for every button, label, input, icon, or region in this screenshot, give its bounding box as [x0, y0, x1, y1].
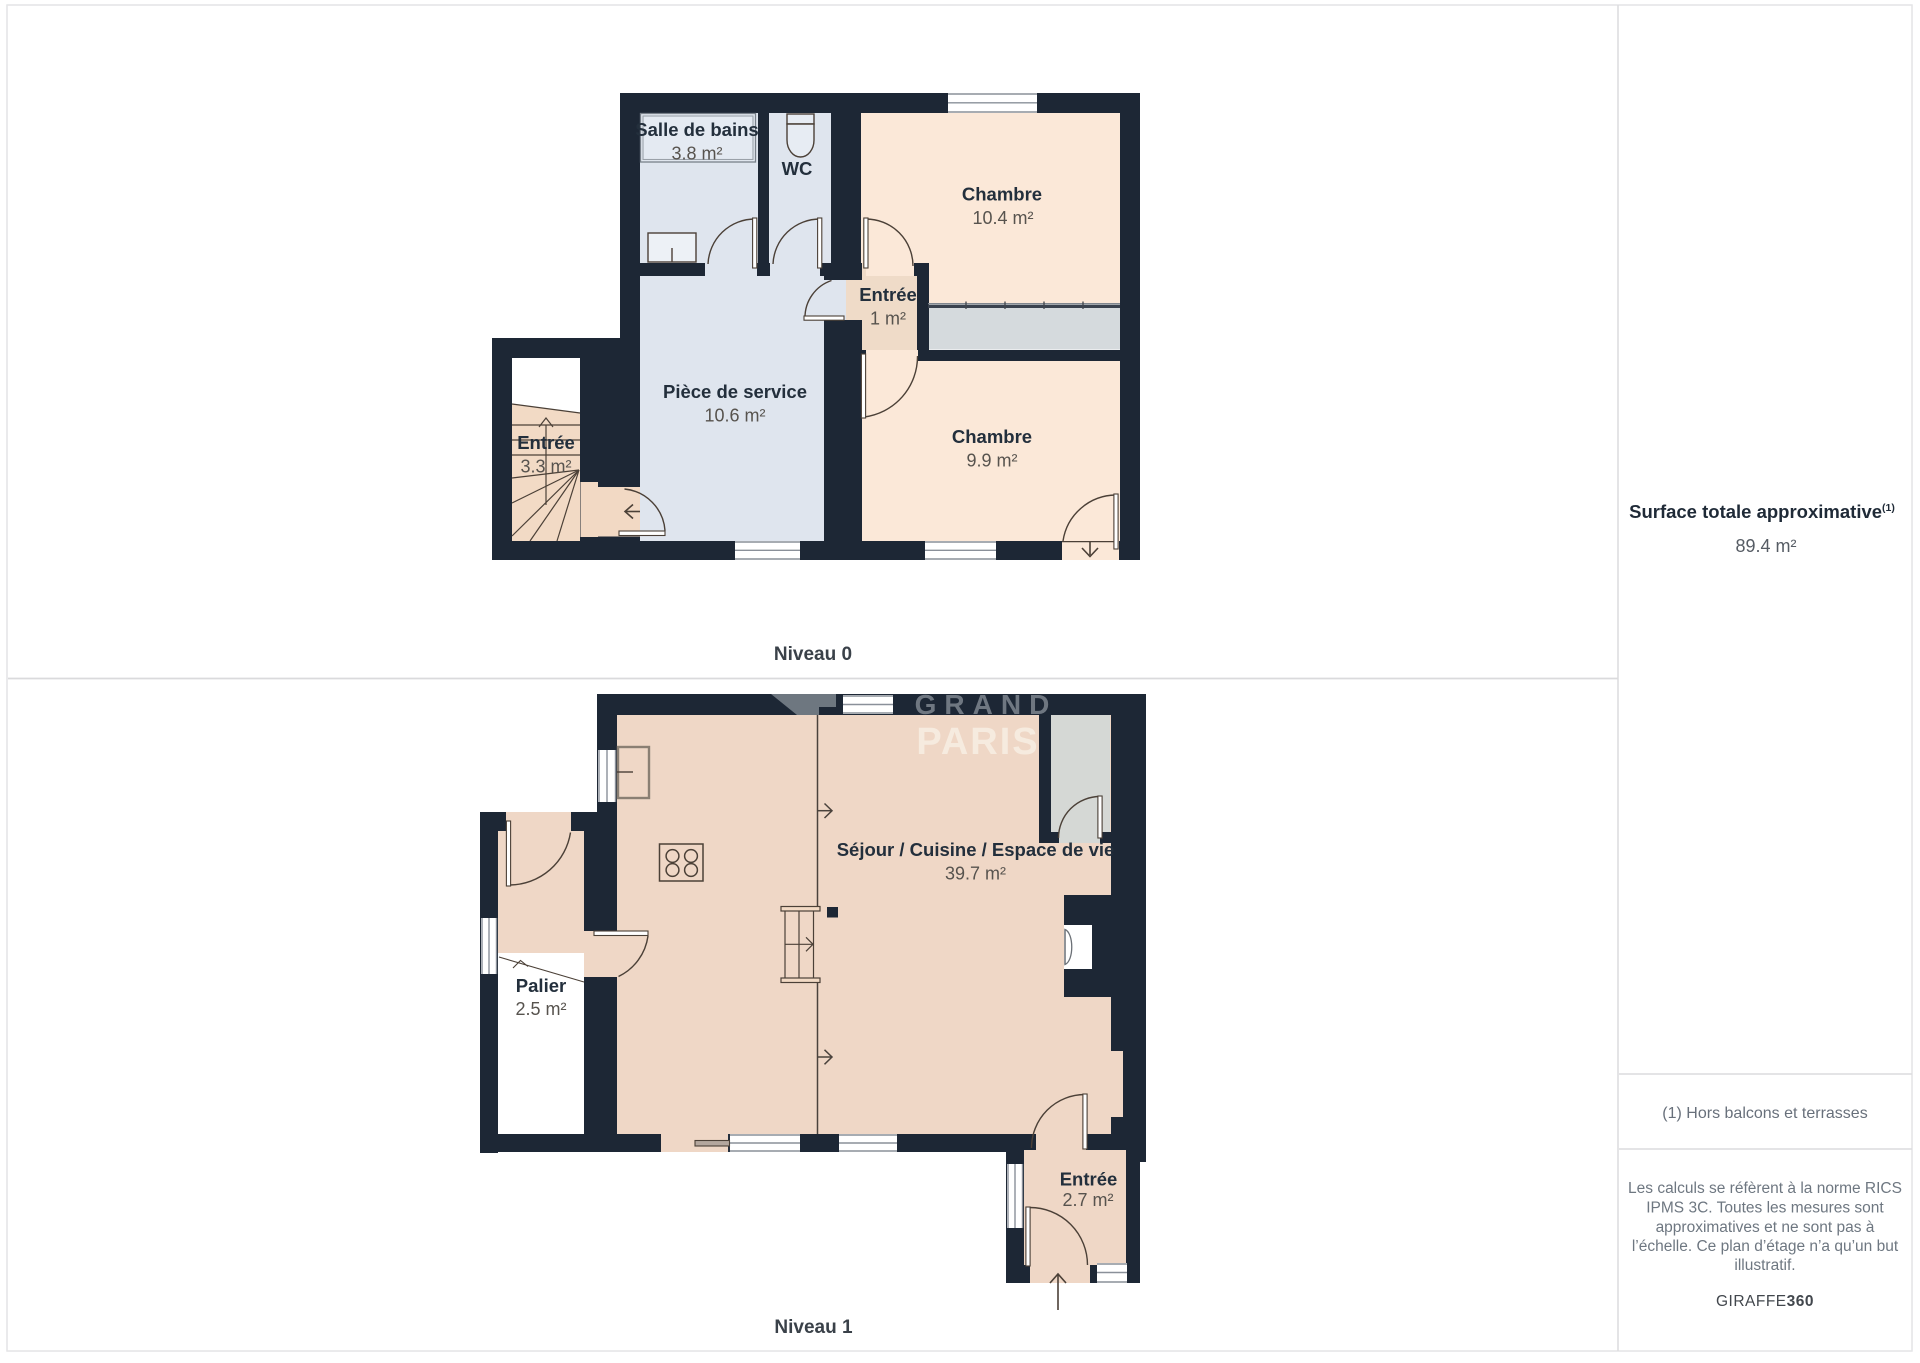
svg-text:2.5 m²: 2.5 m² — [515, 999, 566, 1019]
svg-text:approximatives et ne sont pas: approximatives et ne sont pas à — [1656, 1219, 1875, 1236]
svg-text:9.9 m²: 9.9 m² — [966, 451, 1017, 471]
svg-text:PARIS: PARIS — [916, 721, 1039, 763]
svg-text:3.8 m²: 3.8 m² — [671, 144, 722, 164]
svg-text:Pièce de service: Pièce de service — [663, 381, 807, 402]
svg-text:Entrée: Entrée — [1060, 1169, 1118, 1190]
svg-text:GIRAFFE360: GIRAFFE360 — [1716, 1293, 1814, 1310]
svg-text:Entrée: Entrée — [517, 432, 575, 453]
svg-text:Salle de bains: Salle de bains — [635, 119, 758, 140]
svg-text:89.4 m²: 89.4 m² — [1735, 536, 1796, 556]
svg-text:l’échelle. Ce plan d’étage n’a: l’échelle. Ce plan d’étage n’a qu’un but — [1632, 1238, 1899, 1255]
svg-text:WC: WC — [782, 158, 813, 179]
svg-text:Surface totale approximative(1: Surface totale approximative(1) — [1629, 501, 1895, 522]
svg-text:Entrée: Entrée — [859, 284, 917, 305]
svg-text:GRAND: GRAND — [915, 689, 1058, 720]
svg-text:Les calculs se réfèrent à la n: Les calculs se réfèrent à la norme RICS — [1628, 1180, 1902, 1197]
svg-text:2.7 m²: 2.7 m² — [1062, 1190, 1113, 1210]
svg-text:(1) Hors balcons et terrasses: (1) Hors balcons et terrasses — [1662, 1105, 1867, 1122]
svg-text:1 m²: 1 m² — [870, 309, 906, 329]
svg-text:IPMS 3C. Toutes les mesures so: IPMS 3C. Toutes les mesures sont — [1646, 1200, 1884, 1217]
svg-text:3.3 m²: 3.3 m² — [520, 457, 571, 477]
svg-text:10.4 m²: 10.4 m² — [972, 208, 1033, 228]
svg-text:Niveau 0: Niveau 0 — [774, 644, 852, 665]
svg-text:Palier: Palier — [516, 975, 566, 996]
svg-text:Niveau 1: Niveau 1 — [774, 1317, 853, 1338]
svg-text:39.7 m²: 39.7 m² — [945, 864, 1006, 884]
svg-text:Séjour / Cuisine / Espace de v: Séjour / Cuisine / Espace de vie — [837, 839, 1115, 860]
svg-text:Chambre: Chambre — [962, 184, 1042, 205]
svg-text:Chambre: Chambre — [952, 426, 1032, 447]
svg-text:illustratif.: illustratif. — [1734, 1257, 1795, 1274]
svg-text:10.6 m²: 10.6 m² — [704, 406, 765, 426]
